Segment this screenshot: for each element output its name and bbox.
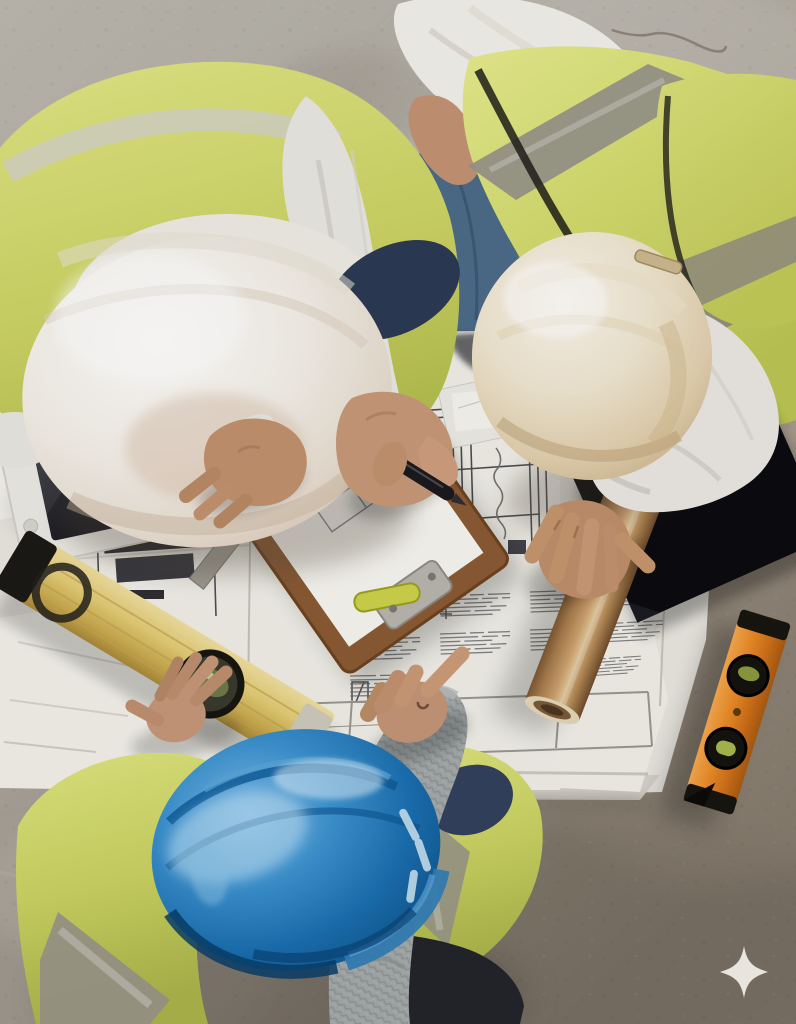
photo-canvas bbox=[0, 0, 796, 1024]
construction-blueprint-photo bbox=[0, 0, 796, 1024]
photo-vignette bbox=[0, 0, 796, 1024]
